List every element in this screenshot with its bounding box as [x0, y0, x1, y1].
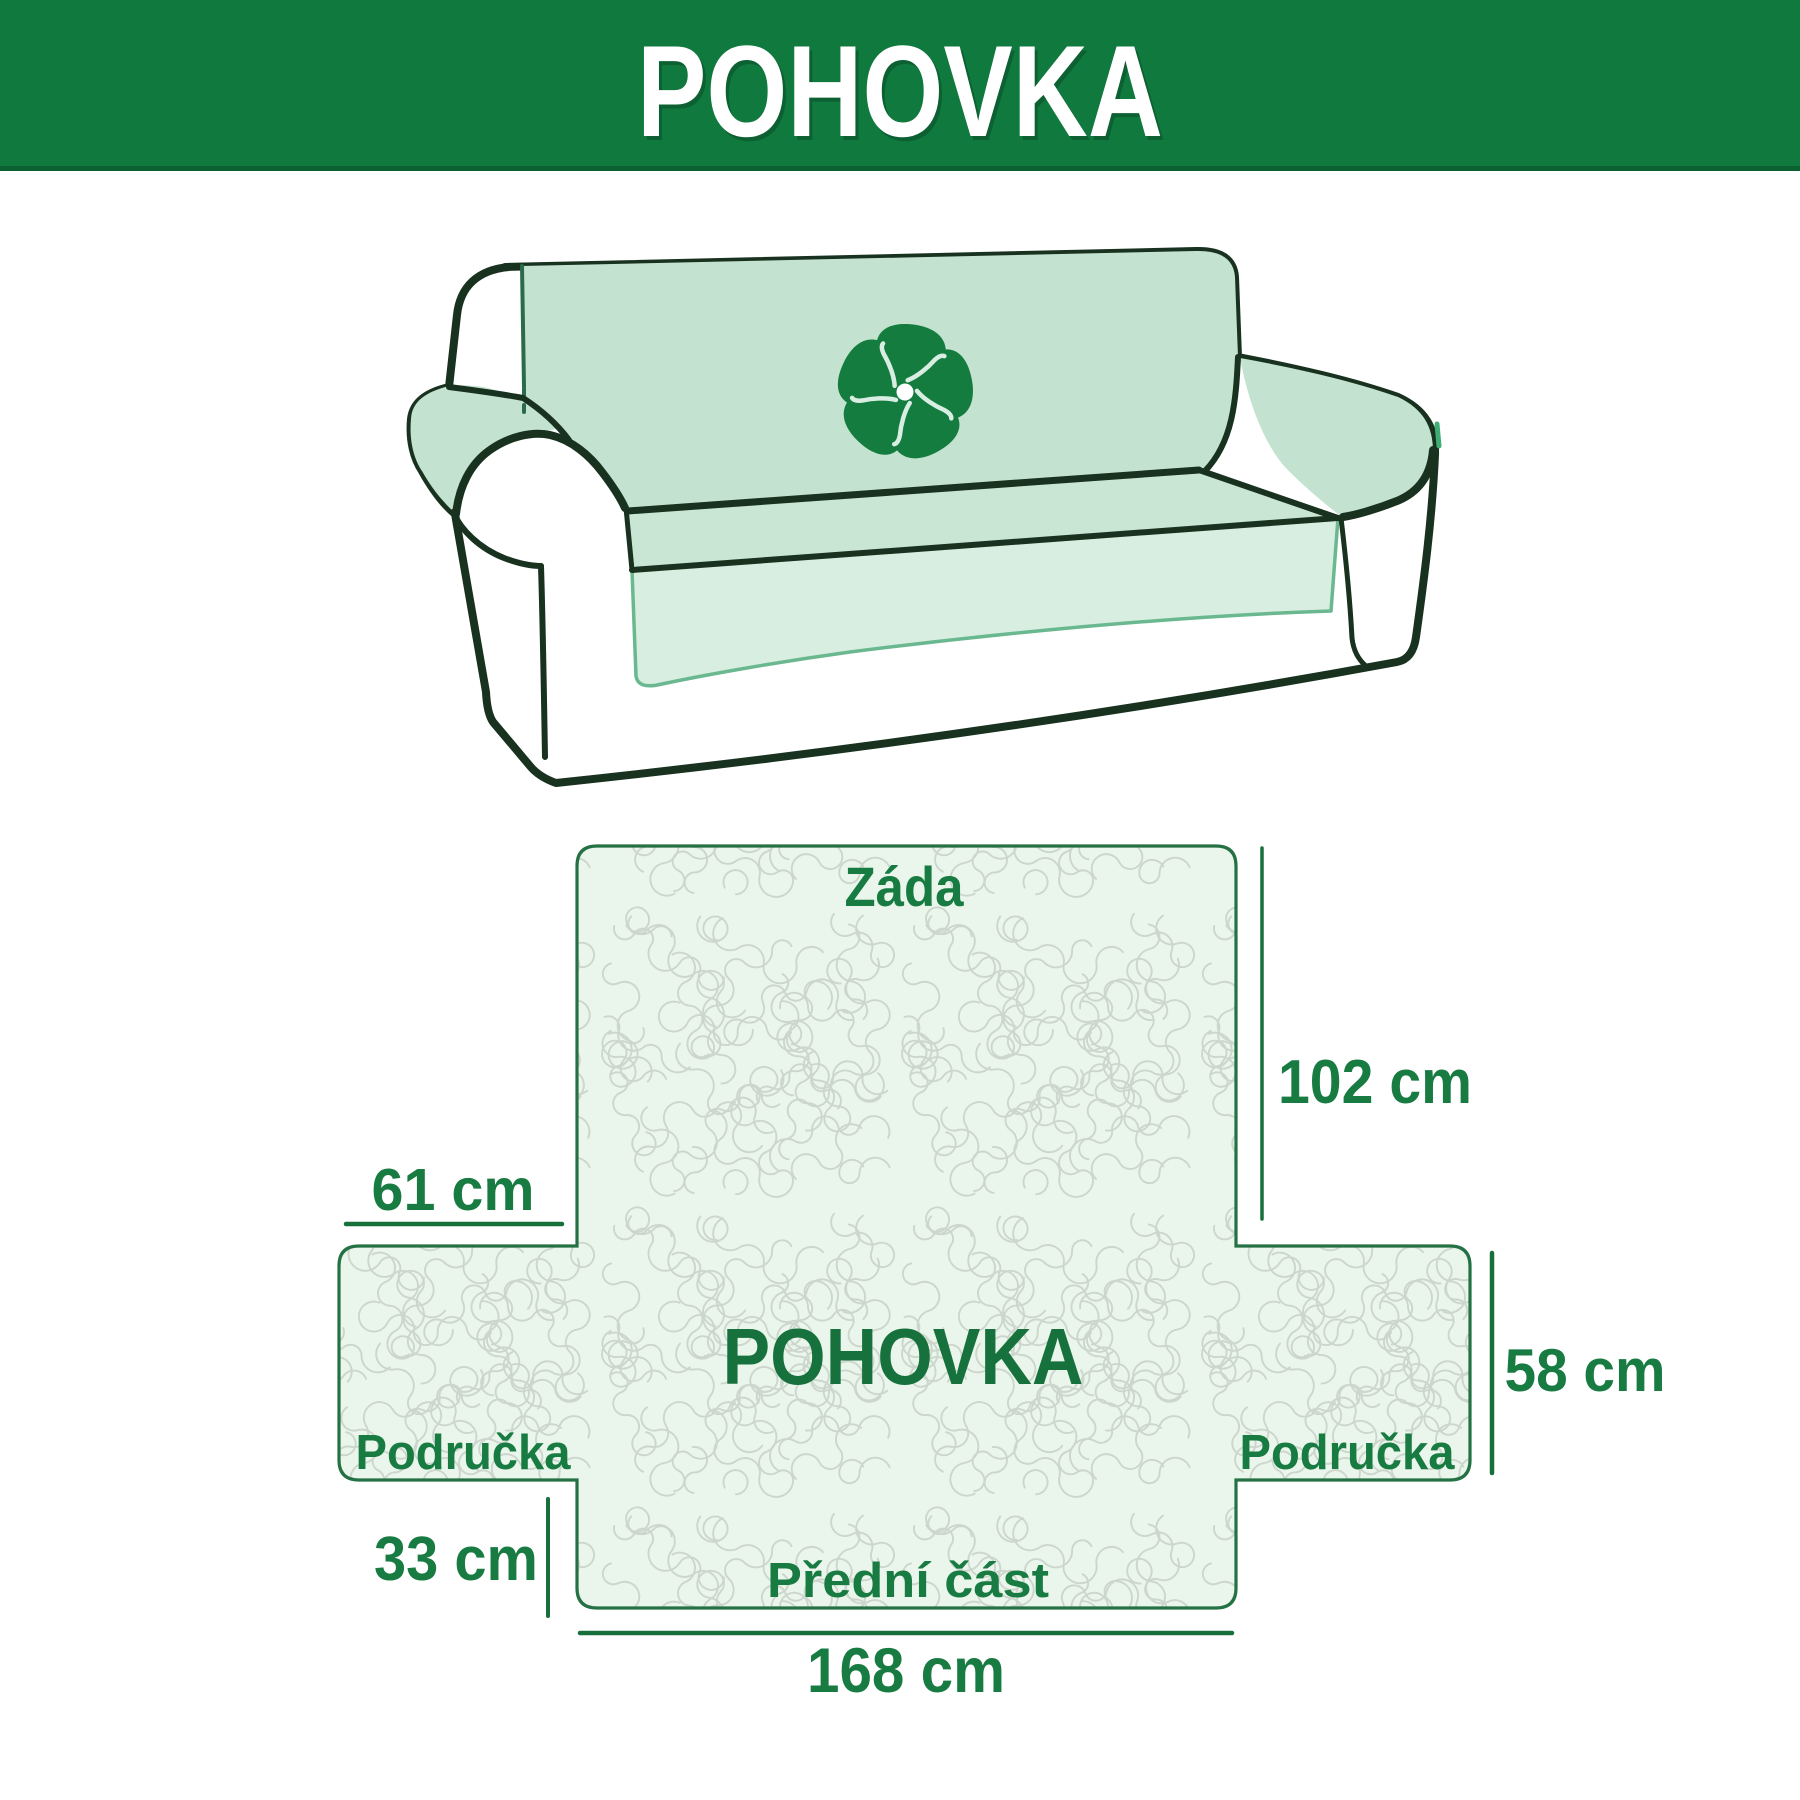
svg-text:61 cm: 61 cm	[372, 1157, 535, 1223]
svg-text:Záda: Záda	[845, 855, 965, 918]
svg-text:58 cm: 58 cm	[1505, 1337, 1666, 1404]
svg-text:Područka: Područka	[1240, 1426, 1456, 1480]
svg-text:Područka: Područka	[356, 1426, 572, 1480]
svg-text:102 cm: 102 cm	[1278, 1048, 1472, 1117]
svg-text:POHOVKA: POHOVKA	[637, 18, 1163, 164]
svg-text:Přední část: Přední část	[767, 1554, 1049, 1608]
svg-text:33 cm: 33 cm	[374, 1525, 538, 1594]
svg-text:POHOVKA: POHOVKA	[723, 1312, 1084, 1401]
svg-text:168 cm: 168 cm	[807, 1636, 1005, 1706]
